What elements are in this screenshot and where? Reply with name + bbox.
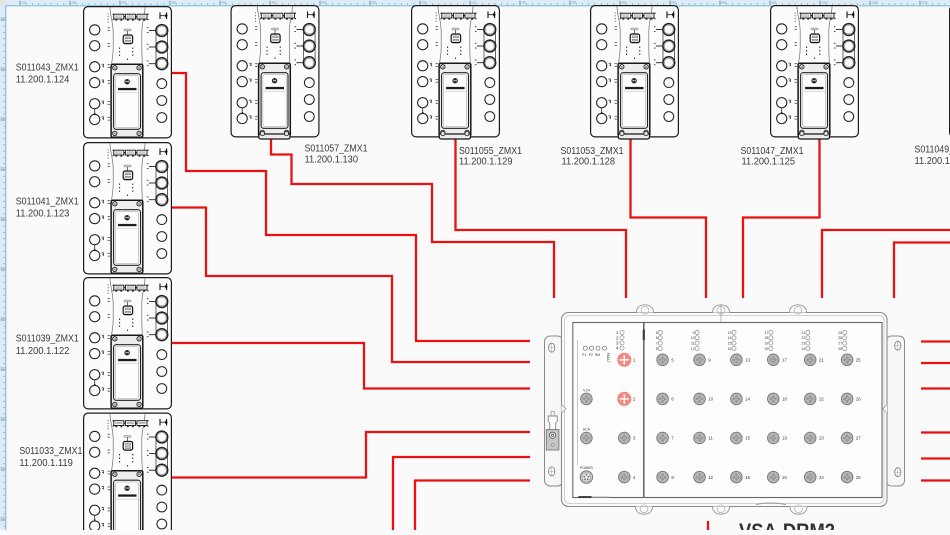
svg-text:28: 28 bbox=[838, 347, 842, 351]
svg-text:12: 12 bbox=[708, 475, 713, 480]
svg-text:250: 250 bbox=[71, 0, 76, 4]
svg-text:450: 450 bbox=[271, 0, 276, 4]
svg-text:S011039_ZMX1: S011039_ZMX1 bbox=[16, 334, 79, 345]
svg-text:25: 25 bbox=[856, 358, 861, 363]
svg-text:P1: P1 bbox=[582, 353, 586, 357]
svg-text:20: 20 bbox=[764, 347, 768, 351]
svg-text:26: 26 bbox=[856, 397, 861, 402]
svg-text:5: 5 bbox=[656, 331, 658, 335]
svg-text:10: 10 bbox=[708, 397, 713, 402]
svg-text:11.200.1.125: 11.200.1.125 bbox=[742, 157, 796, 168]
svg-text:18: 18 bbox=[764, 336, 768, 340]
svg-text:S011041_ZMX1: S011041_ZMX1 bbox=[16, 197, 79, 208]
svg-text:11.200.1.129: 11.200.1.129 bbox=[459, 157, 513, 168]
svg-text:23: 23 bbox=[819, 436, 824, 441]
svg-text:1100: 1100 bbox=[921, 0, 928, 4]
svg-text:7: 7 bbox=[656, 342, 658, 346]
svg-text:10: 10 bbox=[691, 336, 695, 340]
svg-text:350: 350 bbox=[0, 266, 5, 270]
svg-text:11.200.1.128: 11.200.1.128 bbox=[562, 157, 616, 168]
svg-text:650: 650 bbox=[471, 0, 476, 4]
svg-text:S011049_ZMX1: S011049_ZMX1 bbox=[915, 145, 950, 156]
svg-text:11.200.1.124: 11.200.1.124 bbox=[16, 75, 70, 86]
svg-text:150: 150 bbox=[0, 66, 5, 70]
svg-text:POWER: POWER bbox=[580, 466, 593, 470]
svg-text:9: 9 bbox=[693, 331, 695, 335]
svg-text:13: 13 bbox=[745, 358, 750, 363]
svg-text:1000: 1000 bbox=[821, 0, 828, 4]
svg-text:500: 500 bbox=[321, 0, 326, 4]
svg-text:16: 16 bbox=[745, 475, 750, 480]
svg-text:8: 8 bbox=[656, 347, 658, 351]
svg-text:300: 300 bbox=[121, 0, 126, 4]
svg-text:1050: 1050 bbox=[871, 0, 878, 4]
svg-text:17: 17 bbox=[764, 331, 768, 335]
svg-text:S011053_ZMX1: S011053_ZMX1 bbox=[561, 146, 624, 157]
svg-text:RM: RM bbox=[595, 353, 600, 357]
svg-text:24: 24 bbox=[819, 475, 824, 480]
svg-text:11.200.1.123: 11.200.1.123 bbox=[16, 209, 70, 220]
svg-text:19: 19 bbox=[764, 342, 768, 346]
svg-text:24: 24 bbox=[801, 347, 805, 351]
svg-text:600: 600 bbox=[0, 516, 5, 520]
svg-text:18: 18 bbox=[782, 397, 787, 402]
svg-text:21: 21 bbox=[819, 358, 824, 363]
svg-text:700: 700 bbox=[521, 0, 526, 4]
svg-text:11: 11 bbox=[691, 342, 695, 346]
svg-text:P2: P2 bbox=[589, 353, 593, 357]
svg-text:S011033_ZMX1: S011033_ZMX1 bbox=[19, 446, 82, 457]
svg-text:25: 25 bbox=[838, 331, 842, 335]
svg-text:S011055_ZMX1: S011055_ZMX1 bbox=[459, 146, 522, 157]
svg-text:11.200.1.122: 11.200.1.122 bbox=[16, 346, 70, 357]
svg-text:550: 550 bbox=[0, 466, 5, 470]
svg-text:950: 950 bbox=[771, 0, 776, 4]
svg-text:26: 26 bbox=[838, 336, 842, 340]
svg-text:500: 500 bbox=[0, 416, 5, 420]
svg-text:600: 600 bbox=[421, 0, 426, 4]
svg-text:11.200.1.130: 11.200.1.130 bbox=[305, 155, 359, 166]
svg-text:21: 21 bbox=[801, 331, 805, 335]
svg-text:27: 27 bbox=[856, 436, 861, 441]
svg-text:S011057_ZMX1: S011057_ZMX1 bbox=[305, 143, 368, 154]
svg-text:100: 100 bbox=[0, 16, 5, 20]
svg-text:S011047_ZMX1: S011047_ZMX1 bbox=[741, 146, 804, 157]
svg-text:200: 200 bbox=[0, 116, 5, 120]
svg-text:14: 14 bbox=[728, 336, 732, 340]
svg-text:28: 28 bbox=[856, 475, 861, 480]
svg-text:800: 800 bbox=[621, 0, 626, 4]
svg-text:14: 14 bbox=[745, 397, 750, 402]
svg-text:22: 22 bbox=[801, 336, 805, 340]
svg-text:350: 350 bbox=[171, 0, 176, 4]
svg-text:550: 550 bbox=[371, 0, 376, 4]
svg-text:V.24: V.24 bbox=[583, 389, 590, 393]
svg-text:15: 15 bbox=[745, 436, 750, 441]
svg-text:27: 27 bbox=[838, 342, 842, 346]
svg-text:12: 12 bbox=[691, 347, 695, 351]
svg-text:750: 750 bbox=[571, 0, 576, 4]
svg-text:23: 23 bbox=[801, 342, 805, 346]
svg-text:17: 17 bbox=[782, 358, 787, 363]
svg-text:300: 300 bbox=[0, 216, 5, 220]
svg-text:ACA: ACA bbox=[583, 428, 591, 432]
svg-text:VSA-DRM2: VSA-DRM2 bbox=[739, 520, 835, 530]
svg-text:400: 400 bbox=[0, 316, 5, 320]
svg-text:850: 850 bbox=[671, 0, 676, 4]
svg-text:900: 900 bbox=[721, 0, 726, 4]
svg-text:20: 20 bbox=[782, 475, 787, 480]
svg-text:22: 22 bbox=[819, 397, 824, 402]
svg-text:11: 11 bbox=[708, 436, 713, 441]
svg-text:250: 250 bbox=[0, 166, 5, 170]
svg-text:S011043_ZMX1: S011043_ZMX1 bbox=[16, 63, 79, 74]
svg-text:400: 400 bbox=[221, 0, 226, 4]
svg-text:16: 16 bbox=[728, 347, 732, 351]
svg-text:13: 13 bbox=[728, 331, 732, 335]
svg-text:450: 450 bbox=[0, 366, 5, 370]
svg-text:15: 15 bbox=[728, 342, 732, 346]
svg-text:11.200.1.127: 11.200.1.127 bbox=[915, 156, 950, 167]
svg-text:6: 6 bbox=[656, 336, 658, 340]
svg-text:FAULT: FAULT bbox=[606, 353, 610, 363]
svg-text:11.200.1.119: 11.200.1.119 bbox=[19, 458, 73, 469]
svg-text:200: 200 bbox=[21, 0, 26, 4]
svg-text:19: 19 bbox=[782, 436, 787, 441]
